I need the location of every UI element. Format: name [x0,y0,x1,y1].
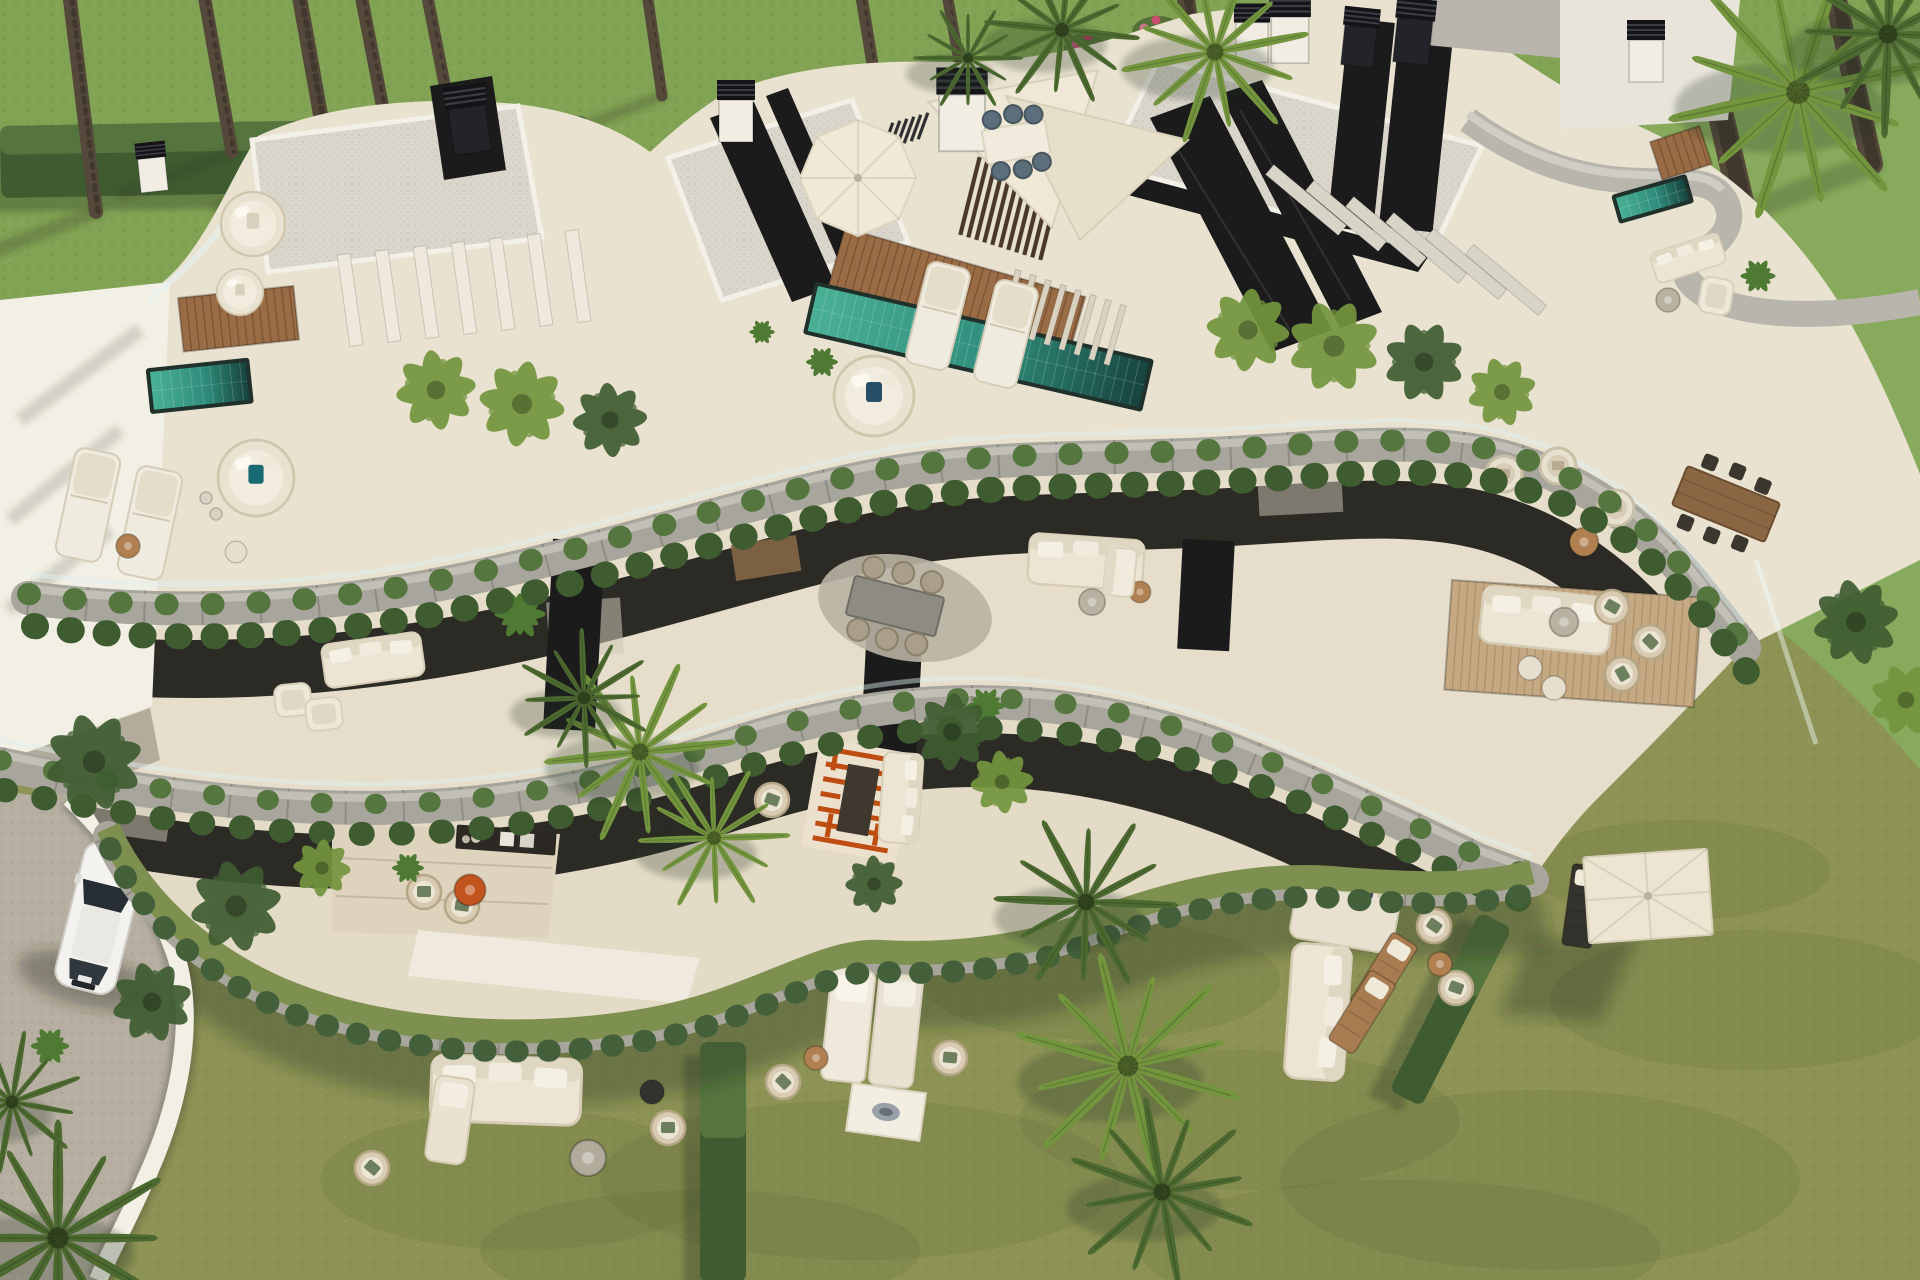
flowers [1152,16,1161,25]
pouf [640,1080,664,1104]
pouf [1518,656,1542,680]
vase [210,508,222,520]
rounddaybed [218,440,294,516]
tableround [1550,608,1579,637]
chimney [717,80,755,142]
sofa [1284,943,1353,1082]
armchair [1697,275,1735,316]
tableround [116,534,140,558]
sofa [1478,585,1613,655]
tableround [804,1046,828,1070]
vase [200,492,212,504]
wicker [1439,971,1473,1005]
rounddaybed [834,356,914,436]
chimney [1269,0,1311,63]
rounddaybed [217,269,263,315]
round-umbrella [800,120,916,236]
tableround [454,874,485,905]
architectural-render [0,0,1920,1280]
bench [1103,547,1138,598]
tableround [570,1140,606,1176]
pouf [1542,676,1566,700]
blanket [846,1083,926,1141]
sq-umbrella [1583,849,1713,943]
scene-svg [0,0,1920,1280]
marble-pier [1177,539,1235,652]
tableround [1079,589,1105,615]
pouf [225,541,247,563]
chimney [1627,20,1665,82]
rounddaybed [221,192,285,256]
tableround [1656,288,1680,312]
sofa [878,752,924,845]
tableround [1428,952,1452,976]
wicker [755,783,789,817]
armchair [304,696,343,732]
